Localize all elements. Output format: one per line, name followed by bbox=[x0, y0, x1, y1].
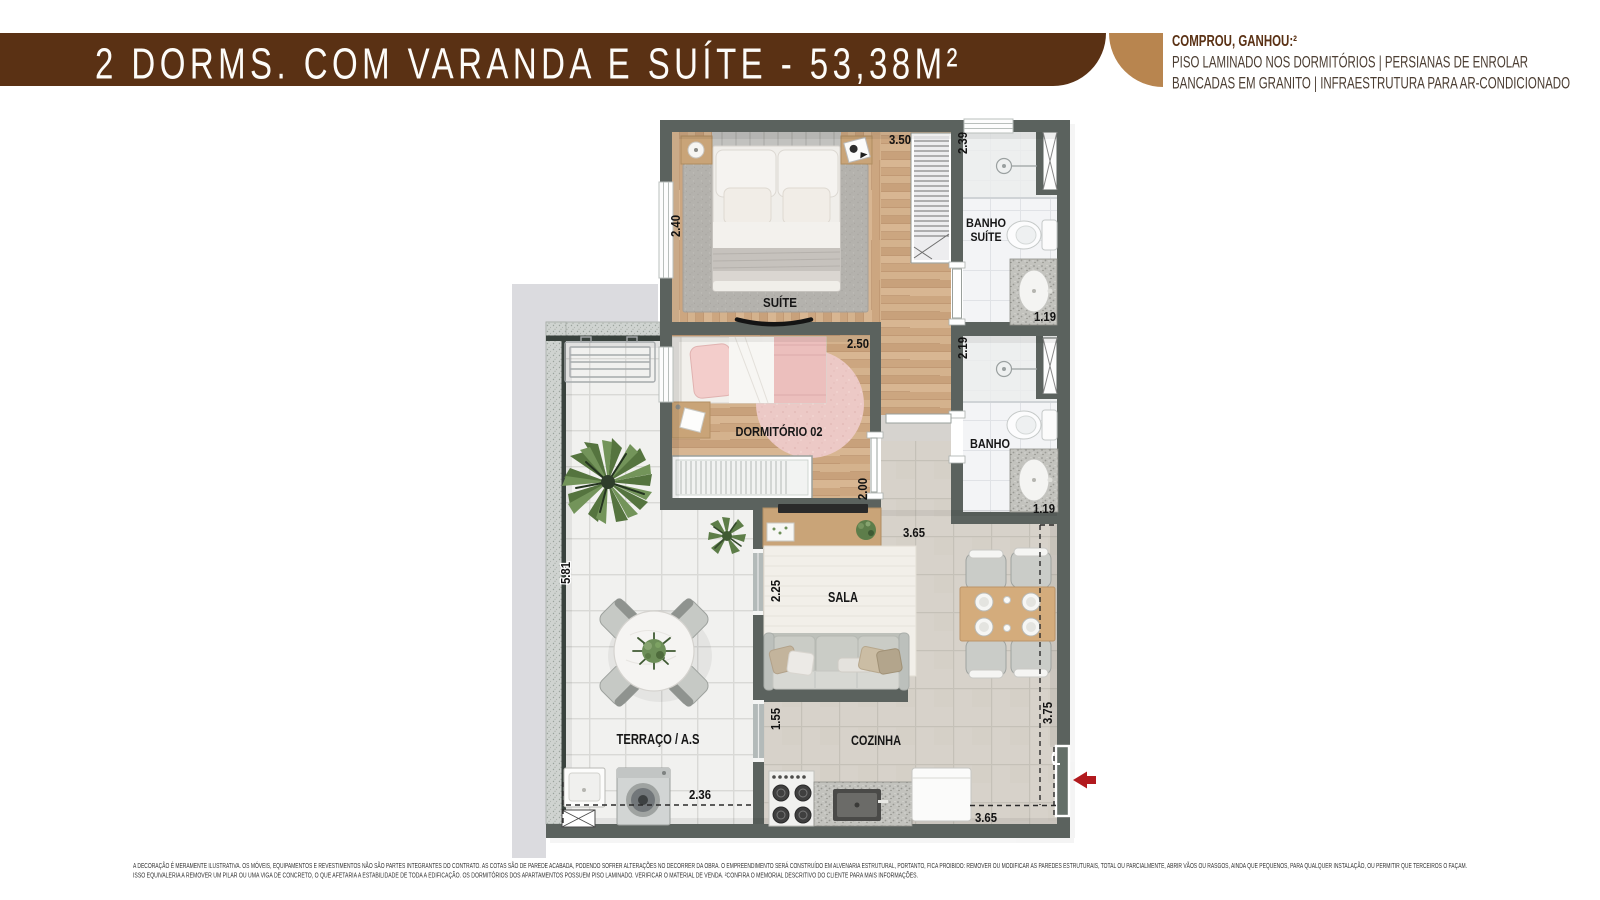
svg-text:3.65: 3.65 bbox=[975, 811, 997, 825]
svg-text:SUÍTE: SUÍTE bbox=[763, 295, 797, 310]
svg-text:5.81: 5.81 bbox=[559, 562, 573, 584]
svg-text:2.50: 2.50 bbox=[847, 337, 869, 351]
svg-text:COZINHA: COZINHA bbox=[851, 732, 901, 748]
svg-text:3.50: 3.50 bbox=[889, 133, 911, 147]
svg-text:DORMITÓRIO 02: DORMITÓRIO 02 bbox=[736, 424, 823, 439]
svg-text:2.36: 2.36 bbox=[689, 788, 711, 802]
svg-text:A DECORAÇÃO É MERAMENTE ILUSTR: A DECORAÇÃO É MERAMENTE ILUSTRATIVA. OS … bbox=[133, 861, 1467, 870]
svg-text:SALA: SALA bbox=[828, 589, 858, 606]
svg-text:1.19: 1.19 bbox=[1033, 502, 1055, 516]
svg-text:BANCADAS EM GRANITO | INFRAEST: BANCADAS EM GRANITO | INFRAESTRUTURA PAR… bbox=[1172, 75, 1570, 93]
svg-text:3.75: 3.75 bbox=[1041, 702, 1055, 724]
svg-text:BANHO: BANHO bbox=[966, 216, 1006, 230]
svg-text:1.19: 1.19 bbox=[1034, 310, 1056, 324]
svg-text:2.40: 2.40 bbox=[669, 215, 683, 237]
svg-text:ISSO EQUIVALERIA A REMOVER UM: ISSO EQUIVALERIA A REMOVER UM PILAR OU U… bbox=[133, 871, 918, 880]
svg-text:TERRAÇO / A.S: TERRAÇO / A.S bbox=[617, 731, 700, 748]
svg-text:SUÍTE: SUÍTE bbox=[971, 229, 1002, 244]
svg-text:2.39: 2.39 bbox=[956, 132, 970, 154]
svg-text:1.55: 1.55 bbox=[769, 708, 783, 730]
svg-text:2.00: 2.00 bbox=[856, 478, 870, 500]
svg-text:3.65: 3.65 bbox=[903, 526, 925, 540]
svg-text:2.25: 2.25 bbox=[769, 580, 783, 602]
svg-text:COMPROU, GANHOU:²: COMPROU, GANHOU:² bbox=[1172, 33, 1297, 50]
svg-text:2.19: 2.19 bbox=[956, 337, 970, 359]
svg-text:PISO LAMINADO NOS DORMITÓRIOS: PISO LAMINADO NOS DORMITÓRIOS | PERSIANA… bbox=[1172, 53, 1528, 72]
svg-text:BANHO: BANHO bbox=[970, 437, 1010, 451]
